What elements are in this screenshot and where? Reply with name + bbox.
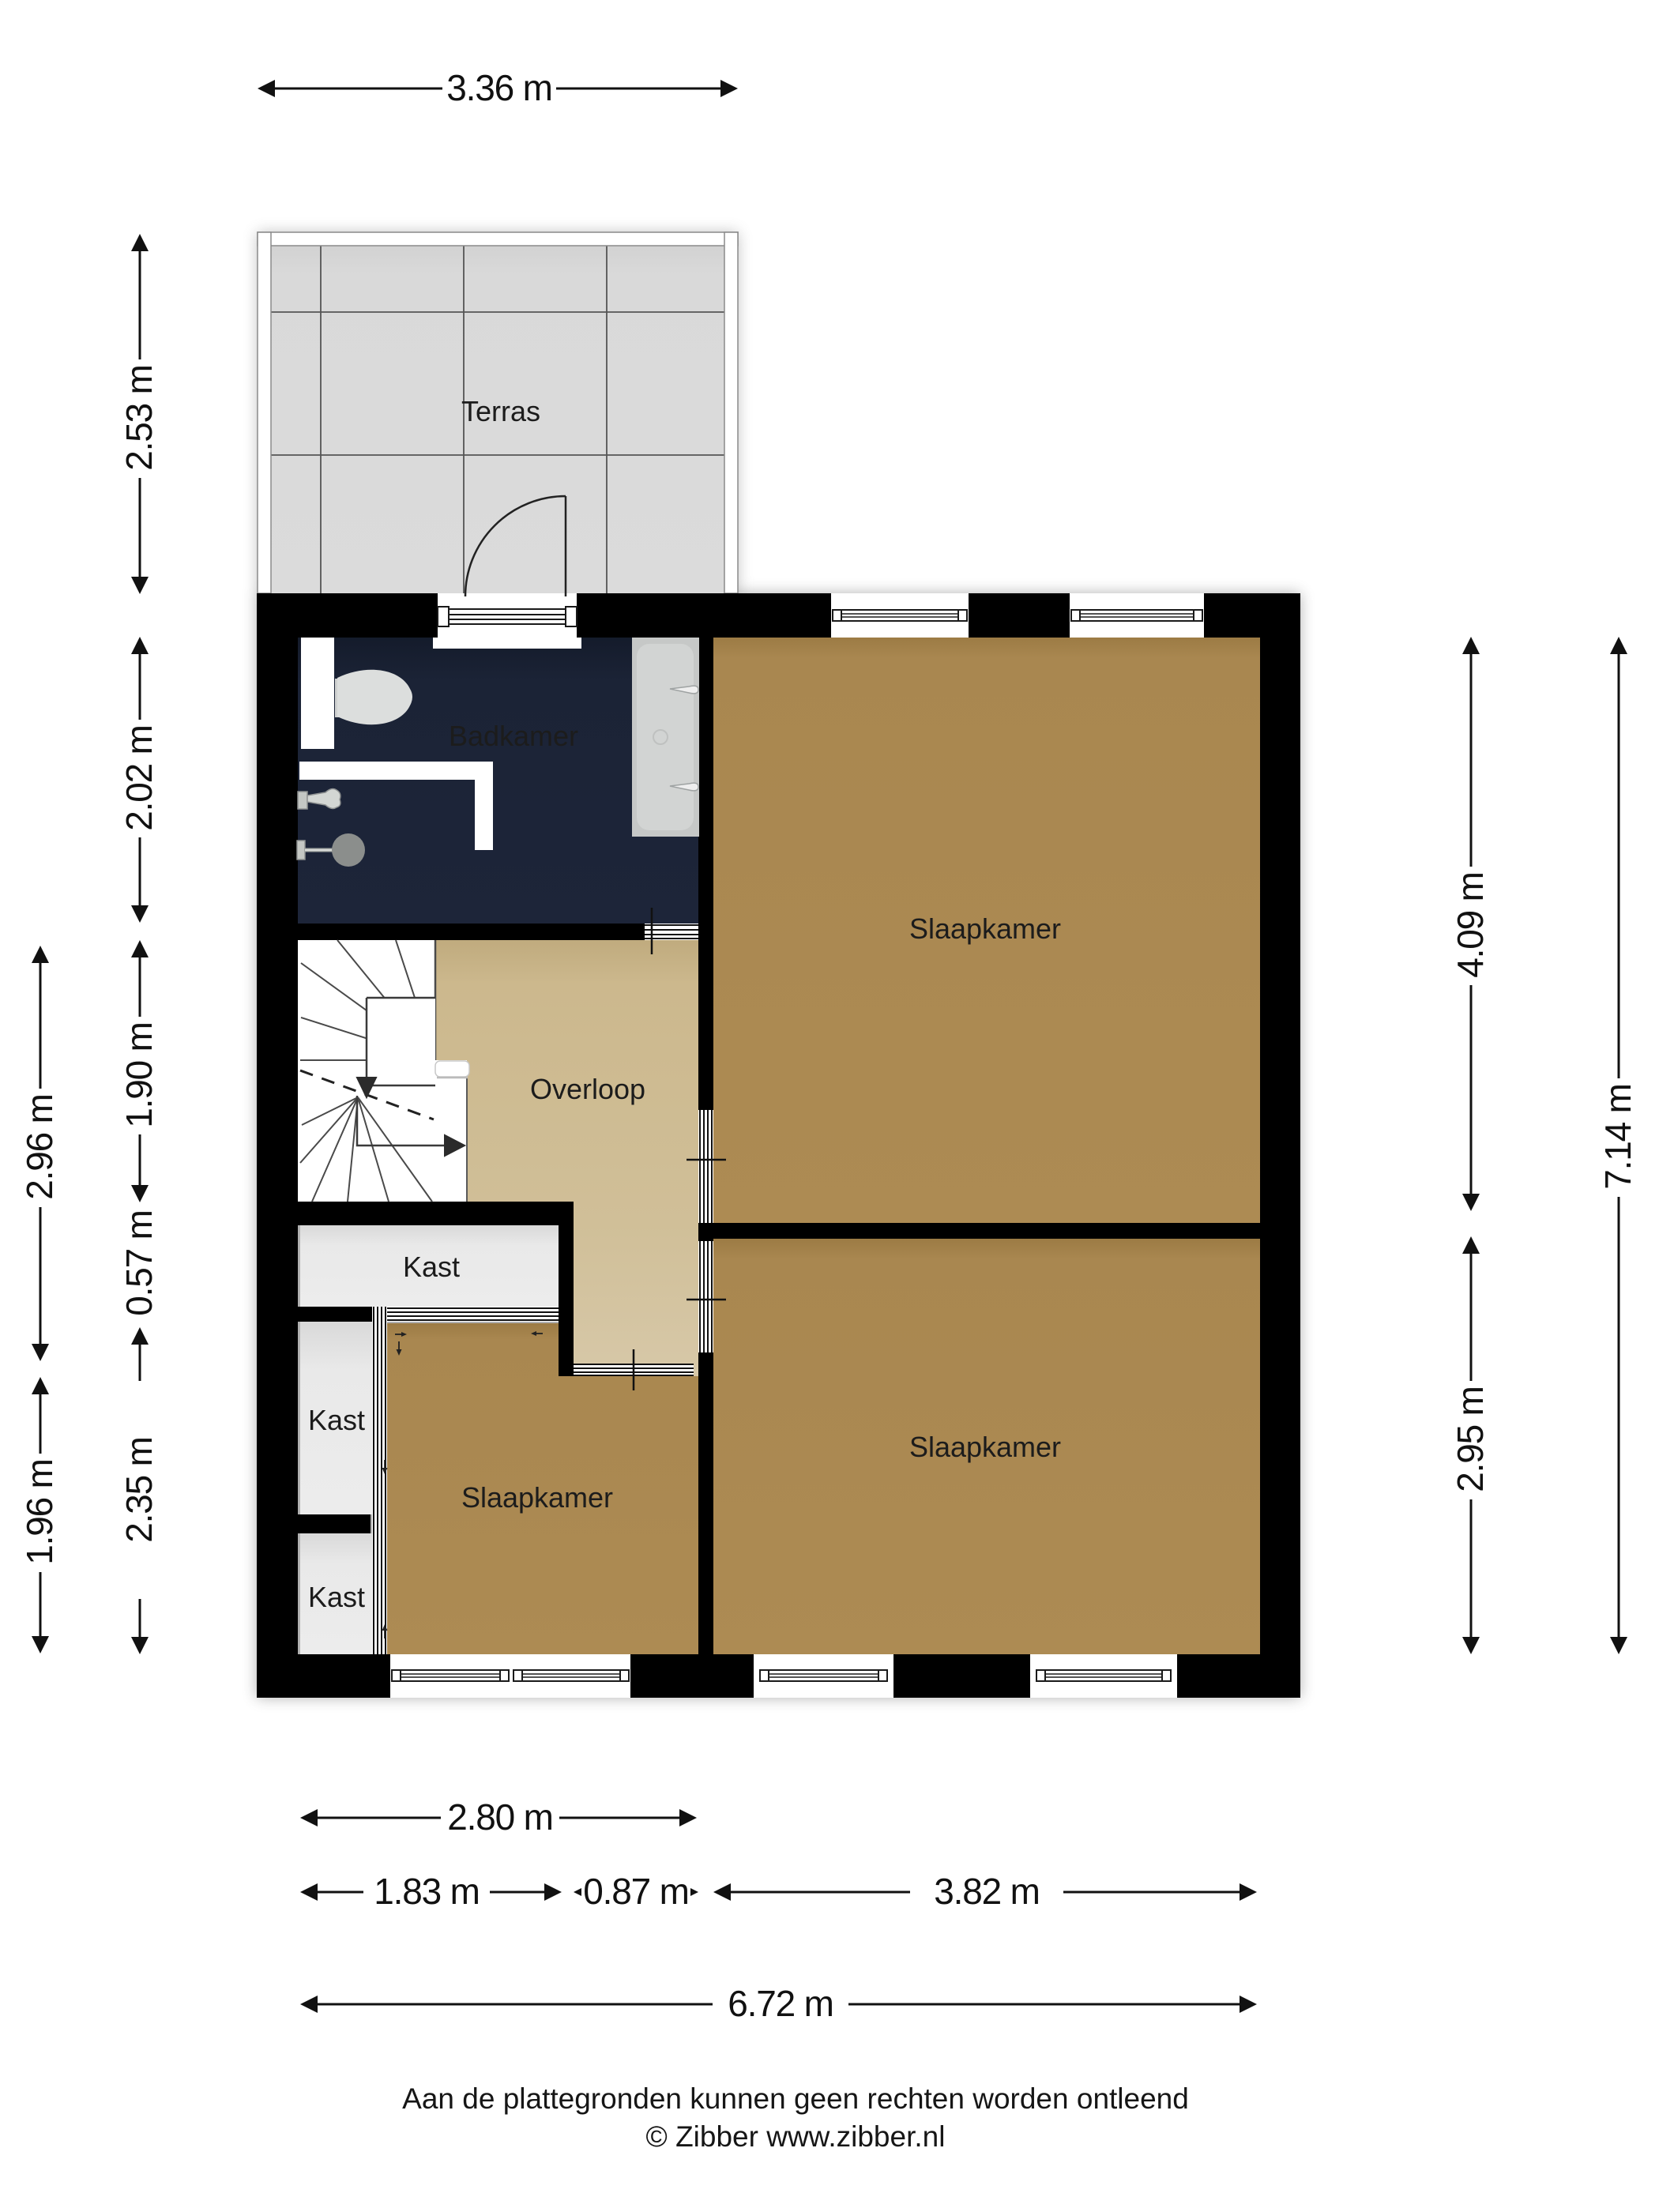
svg-text:Badkamer: Badkamer — [449, 720, 578, 752]
svg-text:3.36 m: 3.36 m — [446, 67, 551, 108]
svg-text:Overloop: Overloop — [530, 1073, 645, 1105]
svg-text:6.72 m: 6.72 m — [728, 1983, 833, 2024]
svg-text:2.35 m: 2.35 m — [118, 1437, 160, 1542]
svg-text:0.57 m: 0.57 m — [118, 1210, 160, 1315]
svg-text:Slaapkamer: Slaapkamer — [909, 1431, 1061, 1463]
svg-text:2.02 m: 2.02 m — [118, 725, 160, 830]
svg-text:2.95 m: 2.95 m — [1450, 1386, 1491, 1492]
svg-text:2.80 m: 2.80 m — [447, 1796, 552, 1838]
svg-text:Aan de plattegronden kunnen ge: Aan de plattegronden kunnen geen rechten… — [402, 2082, 1189, 2115]
svg-text:4.09 m: 4.09 m — [1450, 872, 1491, 977]
svg-text:Kast: Kast — [403, 1251, 460, 1283]
svg-text:© Zibber www.zibber.nl: © Zibber www.zibber.nl — [646, 2120, 946, 2153]
svg-text:Slaapkamer: Slaapkamer — [461, 1481, 613, 1514]
svg-text:2.53 m: 2.53 m — [118, 365, 160, 470]
svg-text:Terras: Terras — [461, 395, 540, 427]
svg-text:2.96 m: 2.96 m — [19, 1094, 60, 1199]
svg-text:Kast: Kast — [308, 1404, 365, 1436]
svg-text:7.14 m: 7.14 m — [1597, 1084, 1638, 1189]
svg-text:1.96 m: 1.96 m — [19, 1459, 60, 1564]
svg-text:Slaapkamer: Slaapkamer — [909, 912, 1061, 945]
svg-text:Kast: Kast — [308, 1581, 365, 1613]
svg-text:0.87 m: 0.87 m — [583, 1871, 688, 1912]
svg-text:1.83 m: 1.83 m — [374, 1871, 479, 1912]
svg-text:3.82 m: 3.82 m — [934, 1871, 1039, 1912]
svg-text:1.90 m: 1.90 m — [118, 1022, 160, 1127]
